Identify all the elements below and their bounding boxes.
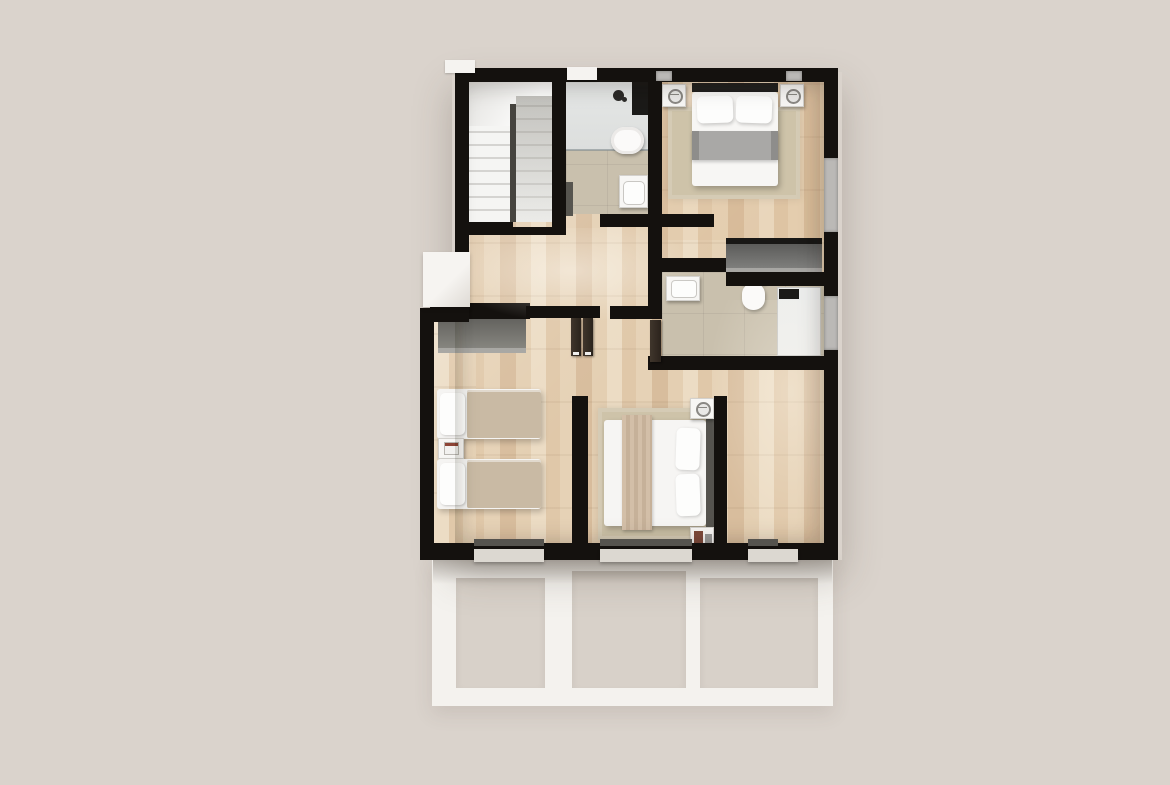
wall-below-stairs xyxy=(455,222,513,235)
twin-bed-2-cover xyxy=(467,460,541,508)
stair-handrail xyxy=(510,104,516,222)
hall-double-door-right xyxy=(583,318,593,356)
wall-bedroom3-entry xyxy=(610,306,662,319)
bedroom3-throw-blanket xyxy=(622,415,652,530)
right-wall-window-upper xyxy=(824,158,838,232)
top-wall-vent-left xyxy=(445,60,475,73)
stair-flight-left xyxy=(469,126,510,222)
twin-wardrobe xyxy=(438,319,526,348)
master-lamp-left-icon xyxy=(668,89,683,104)
wall-bathroom2-top-right xyxy=(726,272,838,286)
wall-south-of-bathroom1 xyxy=(600,214,714,227)
wall-twin-bedroom3-divider xyxy=(572,396,588,545)
twin-wardrobe-front xyxy=(438,348,526,353)
twin-bed-2-pillow xyxy=(440,463,465,505)
wall-stair-bathroom1 xyxy=(552,68,566,235)
stair-flight-right xyxy=(516,96,552,222)
bottom-window-left-frame xyxy=(474,539,544,546)
bathroom1-basin-bowl xyxy=(623,181,645,205)
hall-door-left-handle xyxy=(573,352,579,355)
terrace-opening-center xyxy=(572,571,686,688)
twin-bed-1-pillow xyxy=(440,393,465,435)
bottom-window-center-frame xyxy=(600,539,692,546)
master-bed-headboard xyxy=(692,83,778,92)
master-blanket xyxy=(692,131,778,160)
hall-double-door-left xyxy=(571,318,581,356)
wall-top xyxy=(455,68,838,82)
bottom-window-right-sill xyxy=(748,549,798,562)
master-lamp-right-icon xyxy=(786,89,801,104)
master-pillow-left xyxy=(697,95,734,123)
master-top-window-left xyxy=(656,71,672,81)
bathroom2-door xyxy=(650,320,661,362)
bedroom3-pillow-bottom xyxy=(675,474,700,517)
terrace-opening-left xyxy=(456,578,545,688)
bottom-window-right-frame xyxy=(748,539,778,546)
wall-bathroom2-bottom xyxy=(648,356,824,370)
wall-left-lower xyxy=(420,308,434,560)
wall-bedroom3-headboard-stub xyxy=(714,396,727,548)
bathroom2-basin-bowl xyxy=(671,280,697,298)
wall-stair-step-edge xyxy=(513,227,566,235)
hall-door-right-handle xyxy=(585,352,591,355)
towel-radiator xyxy=(566,182,573,216)
bathroom2-shower-head-icon xyxy=(779,289,799,299)
wall-twin-top xyxy=(526,306,600,318)
master-top-window-right xyxy=(786,71,802,81)
bedroom3-lamp-top-icon xyxy=(696,402,711,417)
shower-head-icon xyxy=(613,90,624,101)
left-light-well-ledge xyxy=(423,252,470,307)
terrace-opening-right xyxy=(700,578,818,688)
right-wall-window-lower xyxy=(824,296,838,350)
bathroom1-toilet xyxy=(611,127,644,154)
bathroom1-shower-column xyxy=(632,82,648,115)
floor-plan-scene xyxy=(0,0,1170,785)
twin-bed-1-cover xyxy=(467,390,541,438)
bottom-window-left-sill xyxy=(474,549,544,562)
bedroom3-headboard xyxy=(706,418,714,528)
bottom-window-center-sill xyxy=(600,549,692,562)
top-wall-vent-center xyxy=(567,67,597,80)
bedroom3-picture-frames xyxy=(694,531,703,543)
twin-nightstand-books xyxy=(444,442,459,455)
master-wardrobe xyxy=(726,244,822,268)
wall-bathroom1-master xyxy=(648,68,662,227)
master-pillow-right xyxy=(736,95,773,123)
bathroom2-toilet xyxy=(742,283,765,310)
bedroom3-pillow-top xyxy=(675,428,700,471)
